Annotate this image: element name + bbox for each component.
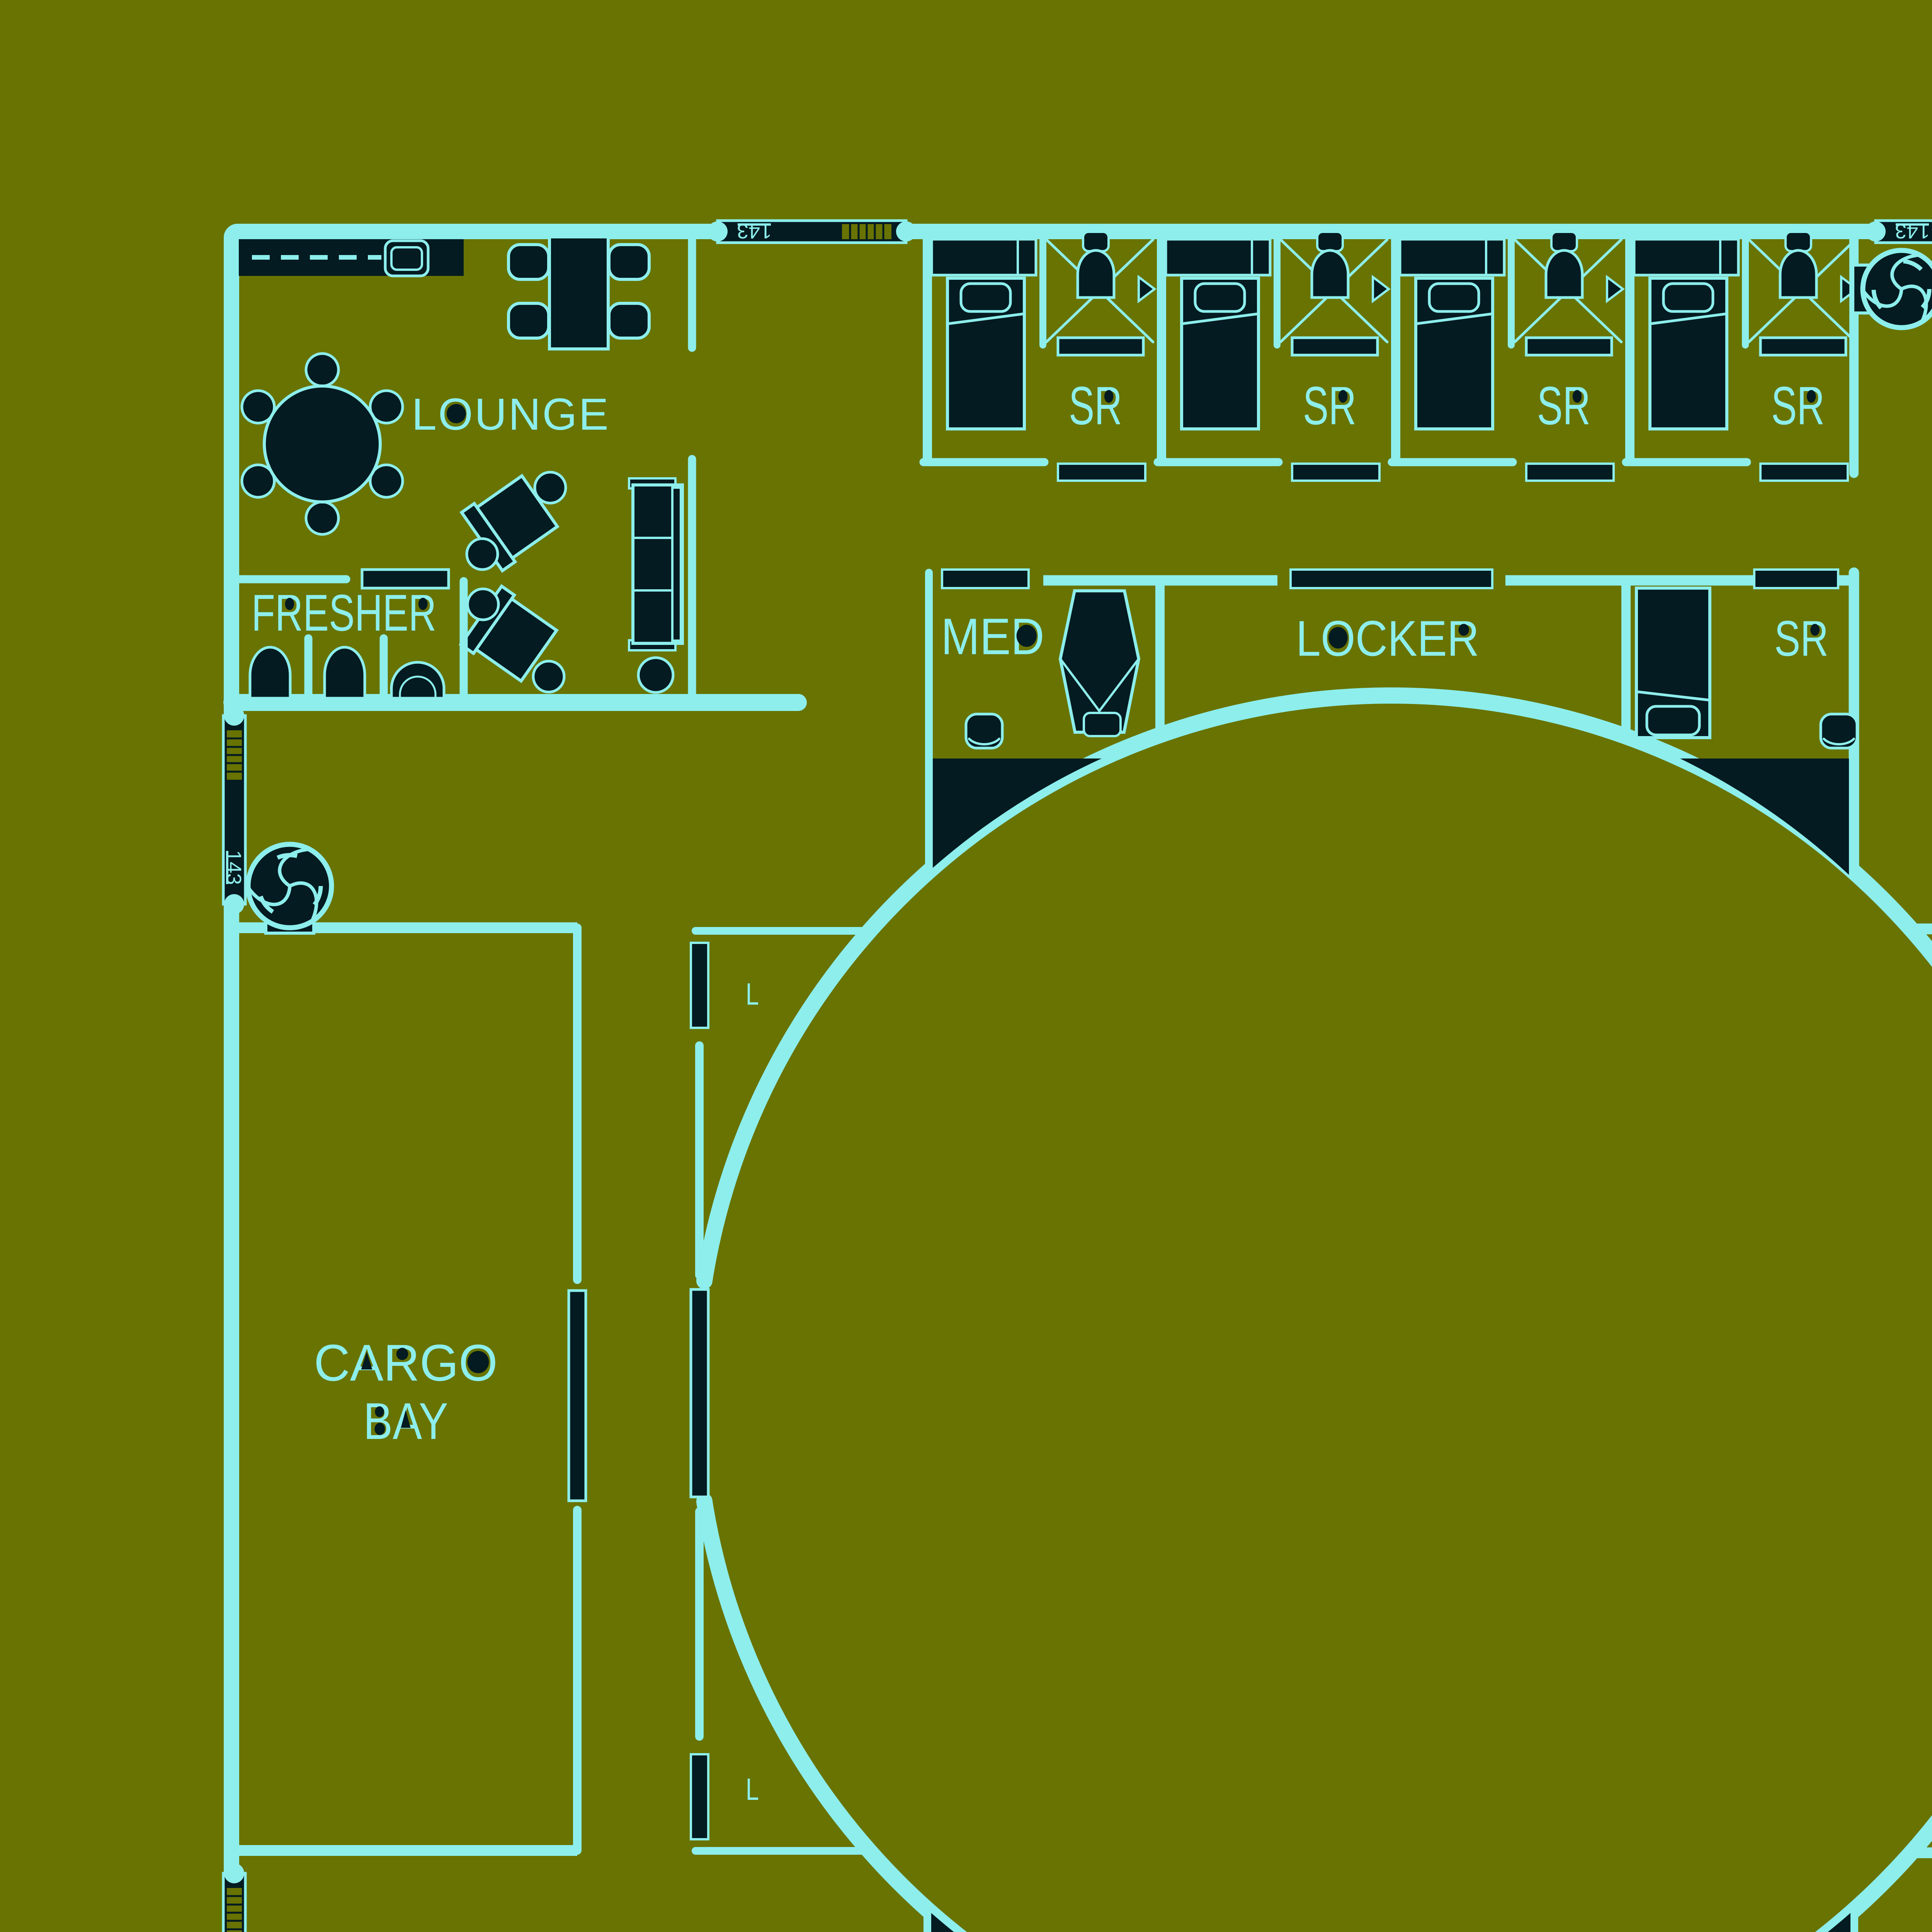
svg-text:SR: SR xyxy=(1069,375,1122,436)
svg-text:L: L xyxy=(746,1772,759,1807)
svg-text:SR: SR xyxy=(1771,375,1825,436)
svg-text:FRESHER: FRESHER xyxy=(252,584,437,642)
svg-text:LOUNGE: LOUNGE xyxy=(412,389,610,439)
svg-text:143: 143 xyxy=(222,850,245,885)
svg-text:L: L xyxy=(746,977,759,1012)
svg-text:LOCKER: LOCKER xyxy=(1296,611,1479,667)
svg-text:SR: SR xyxy=(1303,375,1356,436)
svg-text:SR: SR xyxy=(1537,375,1590,436)
svg-text:143: 143 xyxy=(737,219,772,243)
svg-text:SR: SR xyxy=(1774,611,1828,667)
svg-text:143: 143 xyxy=(1895,219,1930,243)
